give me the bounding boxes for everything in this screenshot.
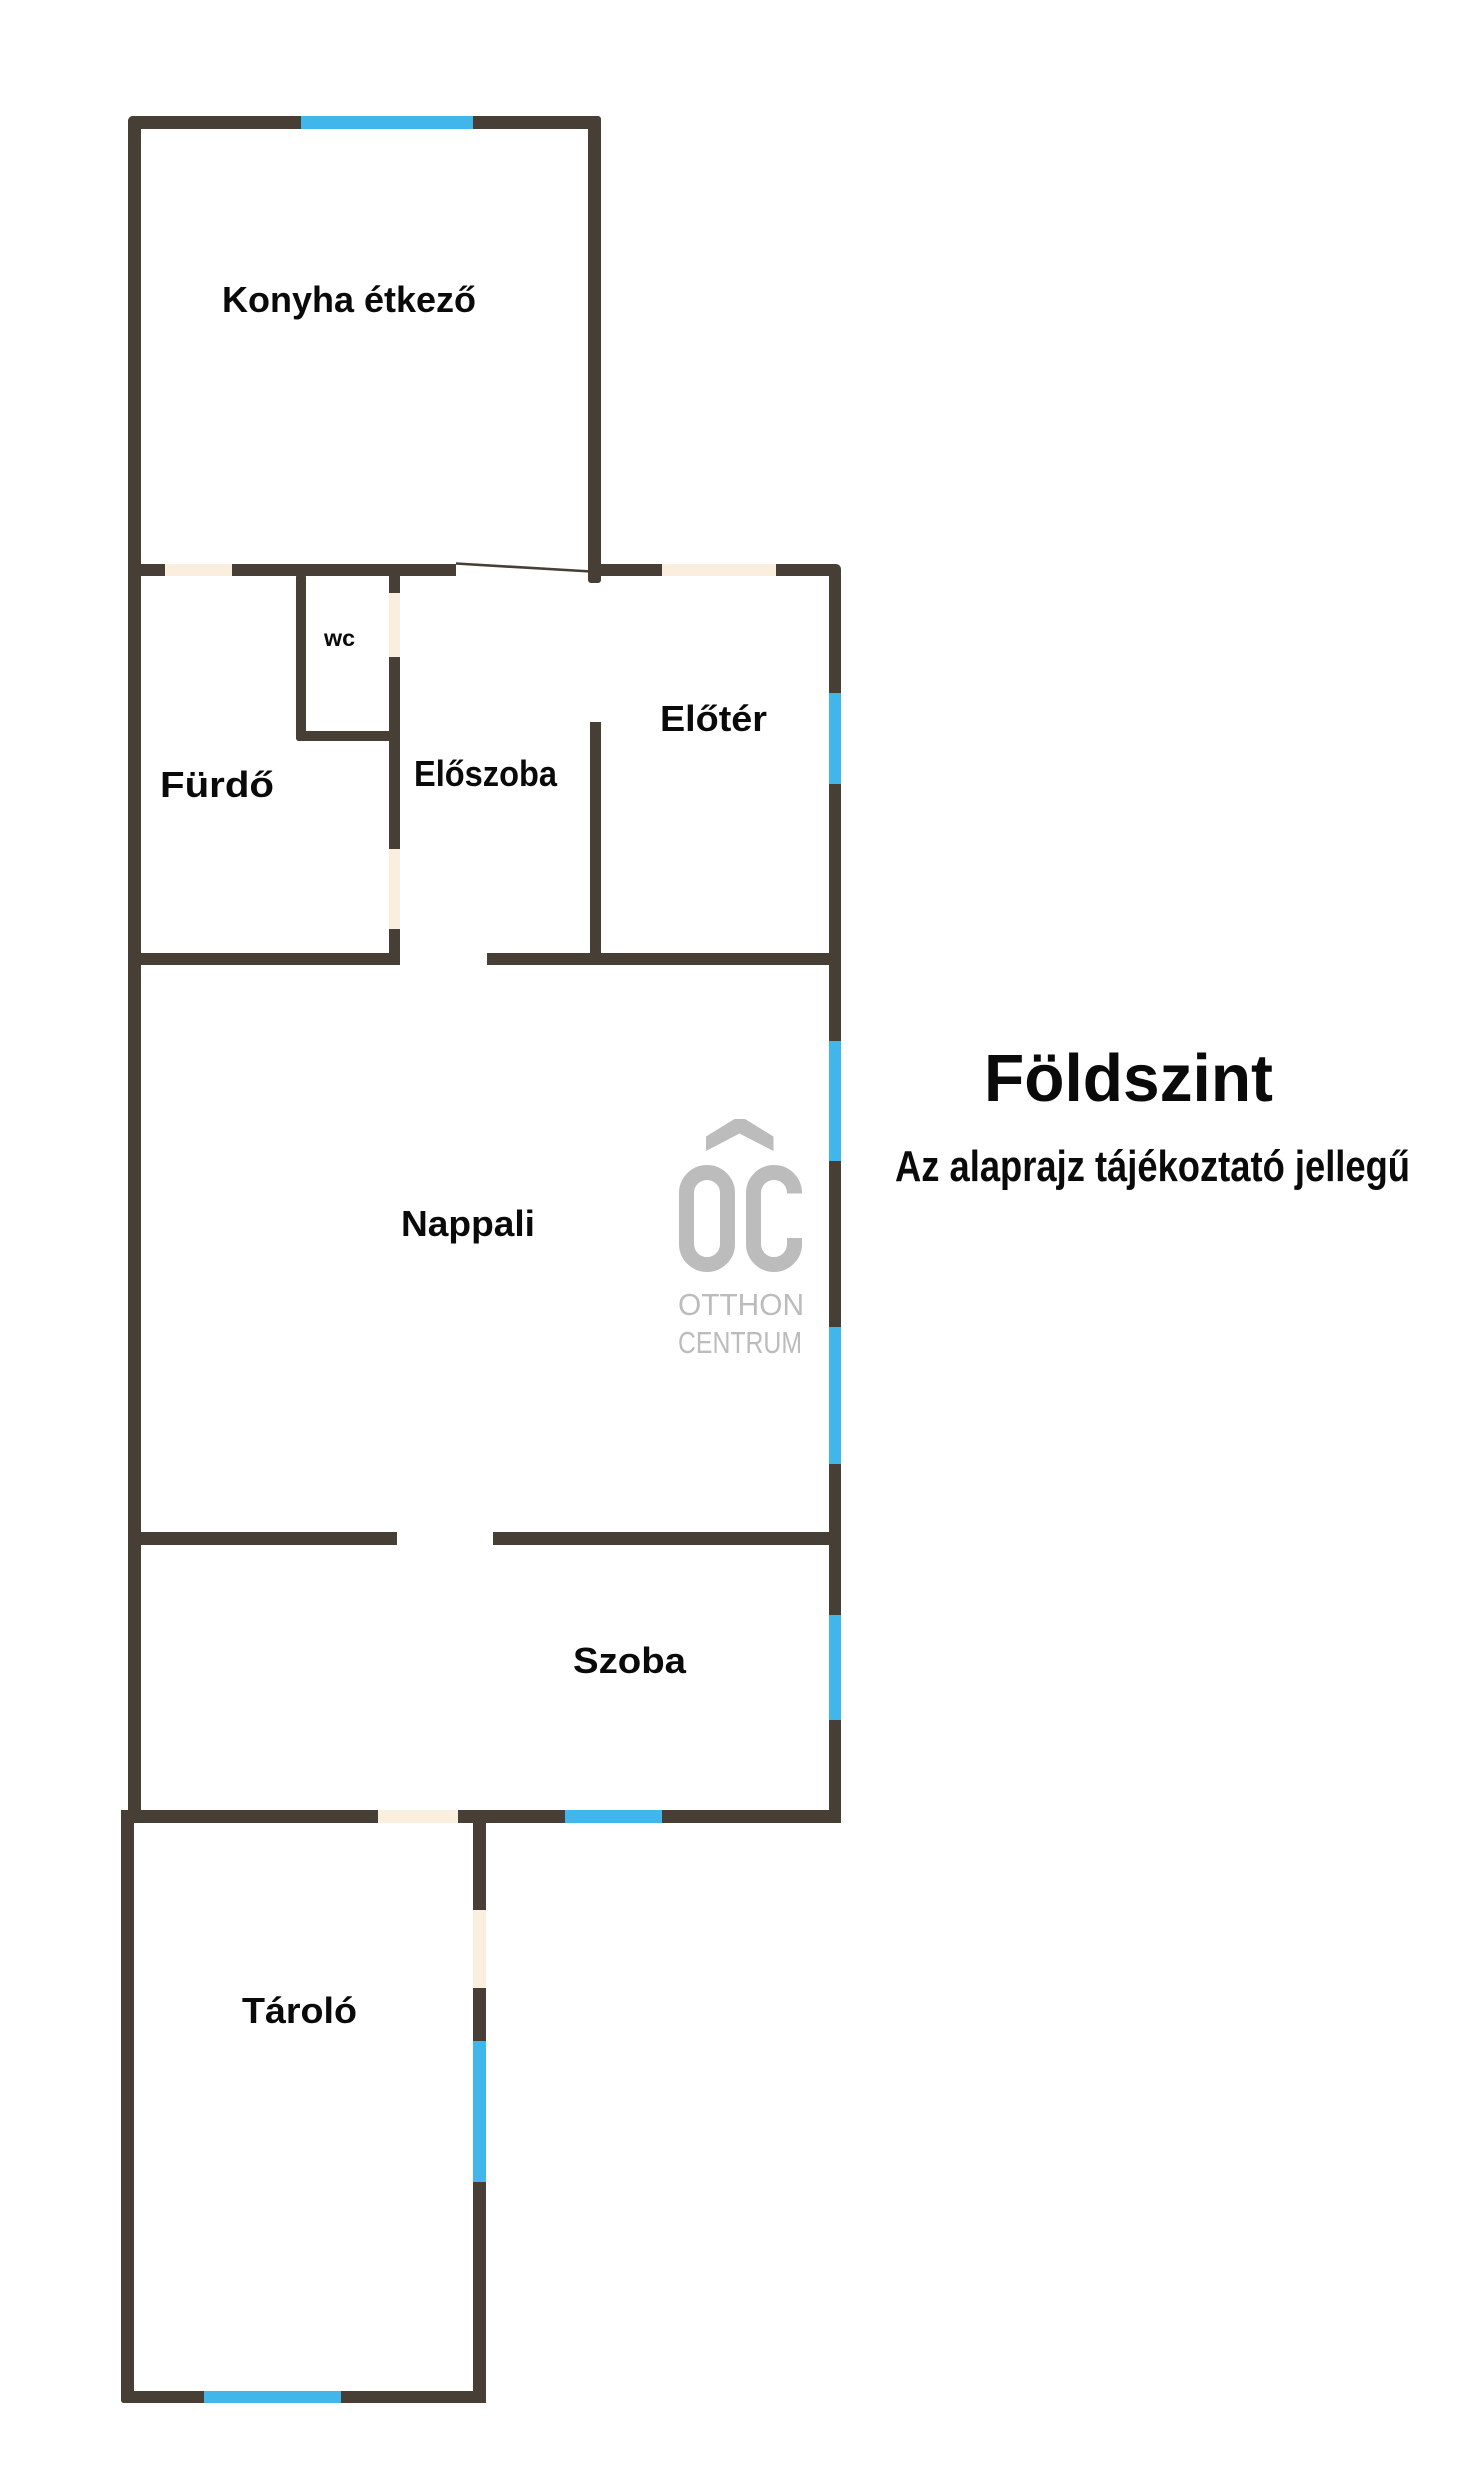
svg-text:CENTRUM: CENTRUM <box>678 1325 802 1360</box>
svg-text:Konyha étkező: Konyha étkező <box>222 279 476 320</box>
svg-text:Szoba: Szoba <box>573 1640 687 1681</box>
svg-text:wc: wc <box>323 625 355 651</box>
svg-text:Nappali: Nappali <box>401 1203 535 1244</box>
svg-text:Az alaprajz tájékoztató jelleg: Az alaprajz tájékoztató jellegű <box>895 1142 1410 1191</box>
svg-text:Előtér: Előtér <box>660 698 767 739</box>
svg-text:Földszint: Földszint <box>984 1041 1273 1116</box>
svg-text:Fürdő: Fürdő <box>160 764 274 805</box>
svg-text:Tároló: Tároló <box>242 1990 357 2031</box>
svg-text:Előszoba: Előszoba <box>414 753 558 794</box>
svg-text:OTTHON: OTTHON <box>678 1287 804 1322</box>
